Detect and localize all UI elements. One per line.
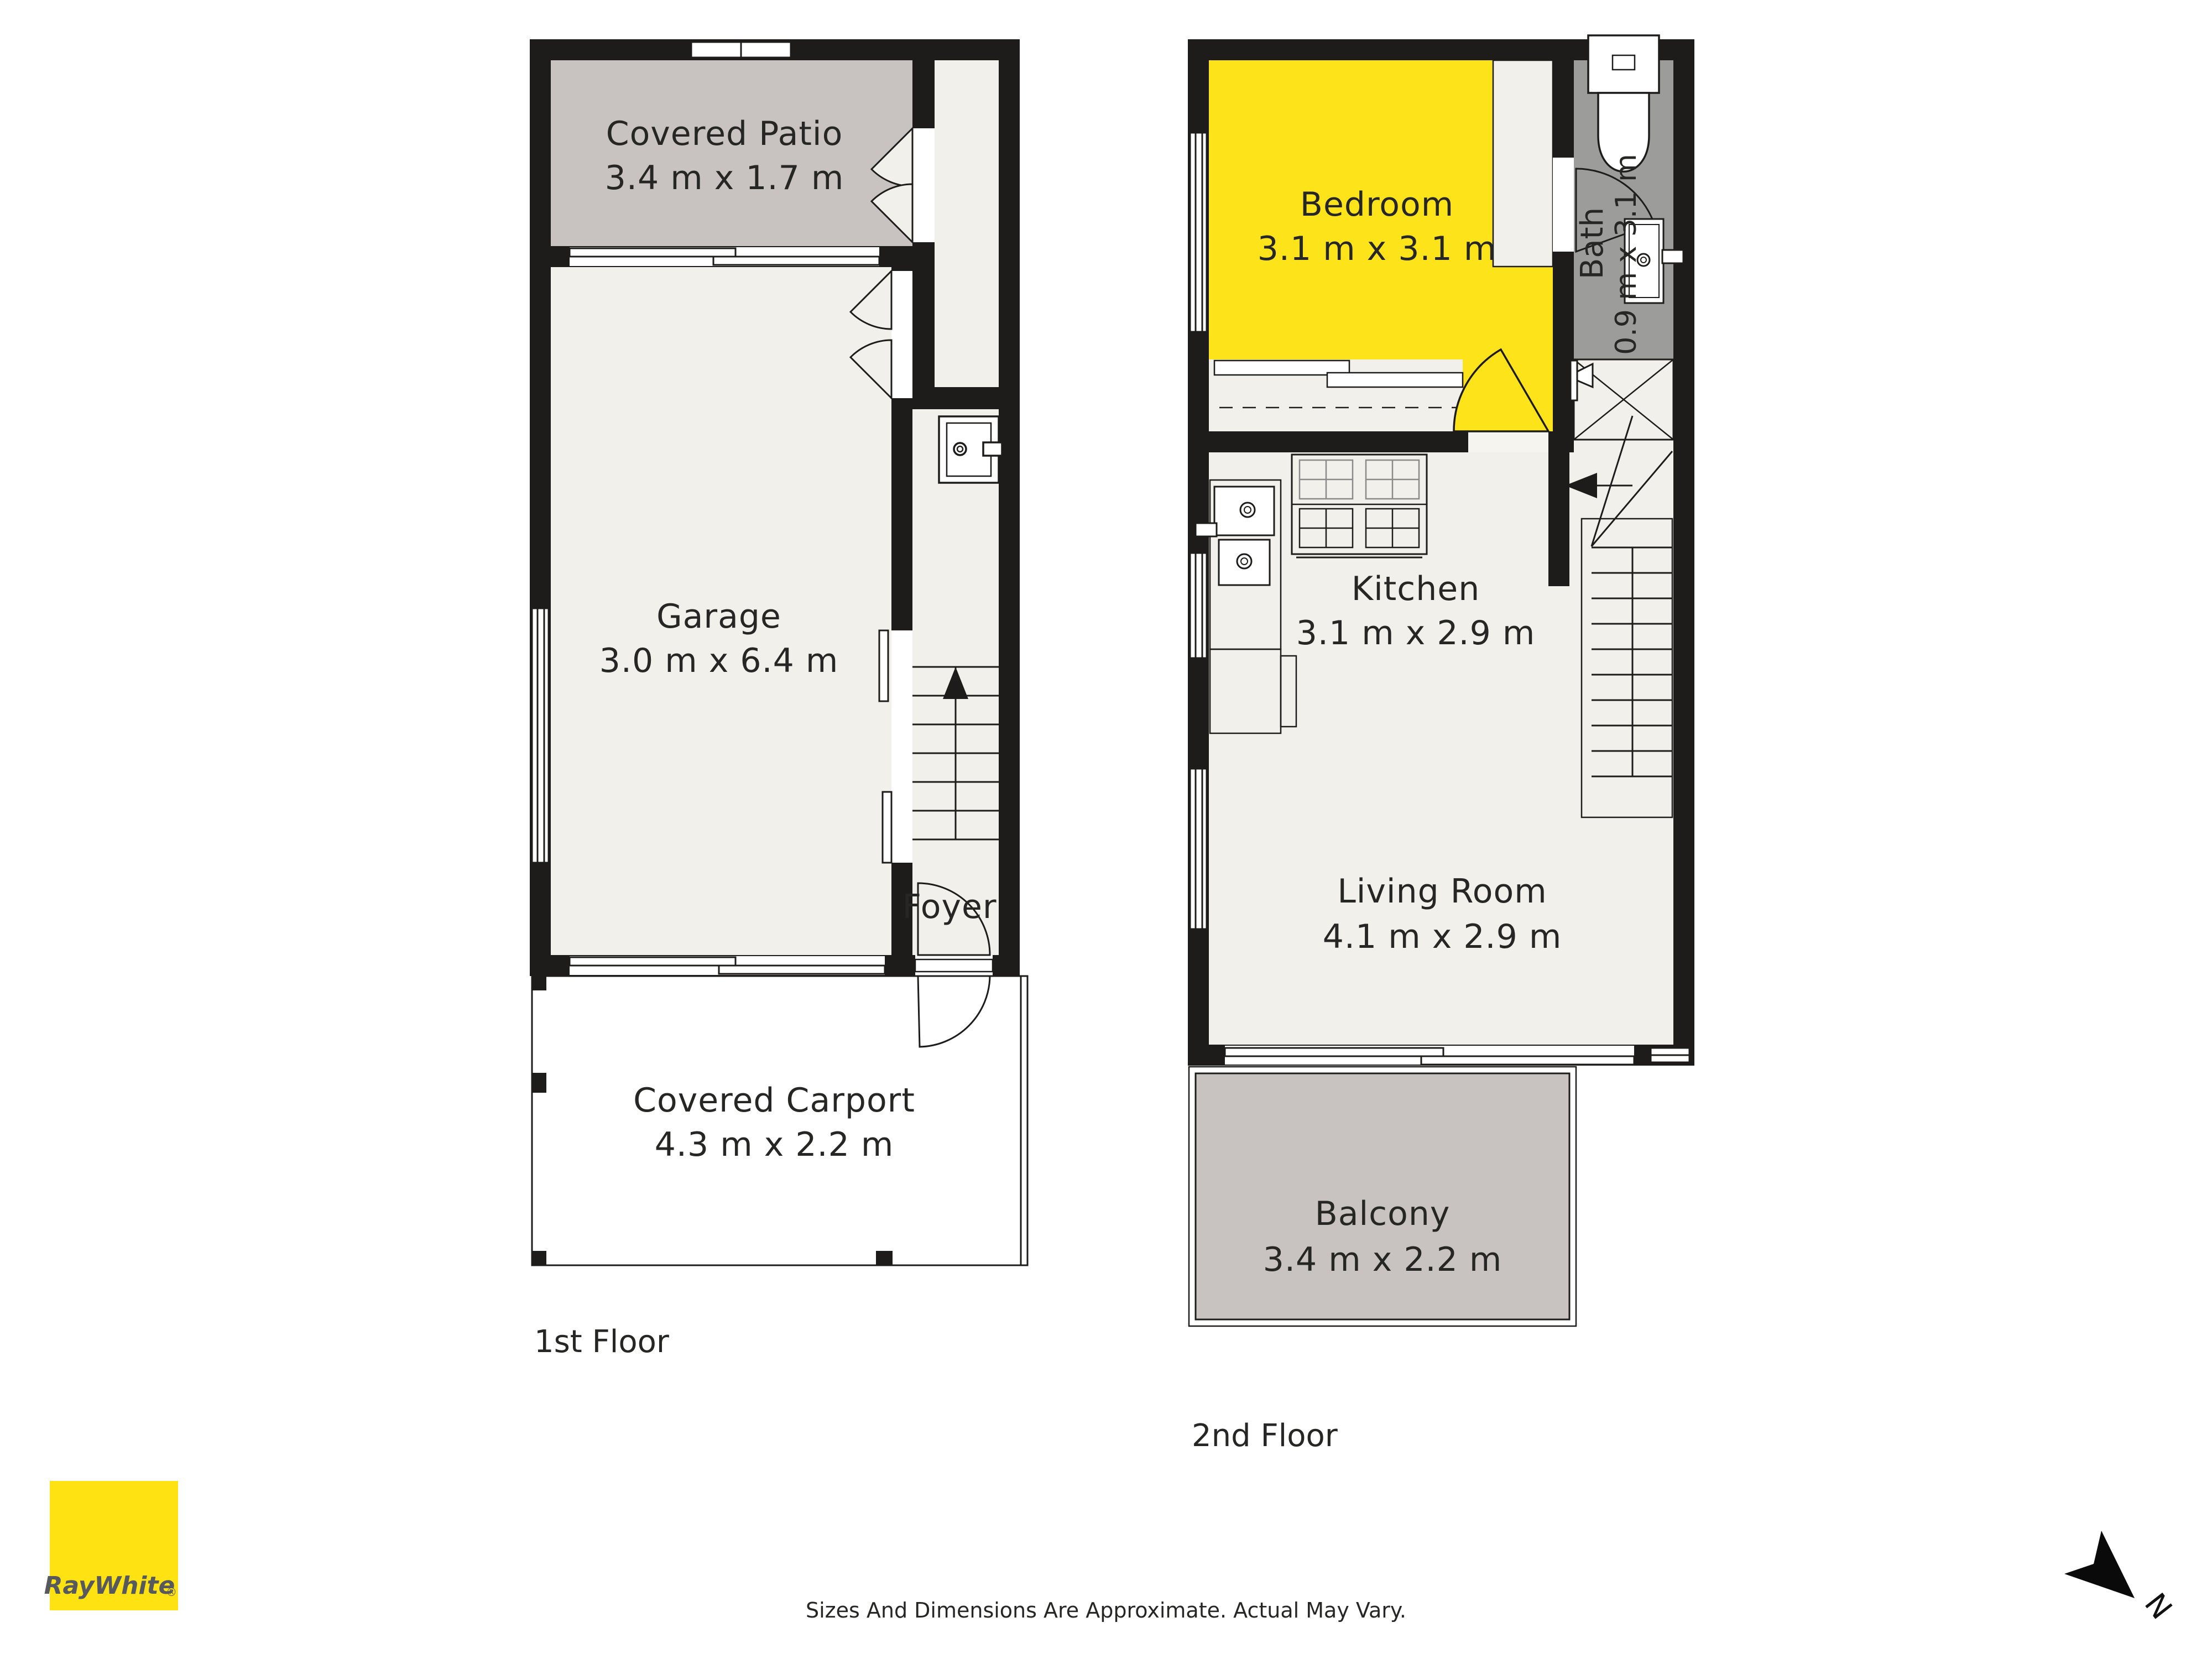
second-floor-plan: Bedroom 3.1 m x 3.1 m Bath 0.9 m x 3.1 m…: [1188, 35, 1694, 1454]
kitchen-label: Kitchen: [1352, 570, 1480, 608]
cooktop-icon: [1292, 455, 1427, 557]
garage-label: Garage: [656, 597, 781, 636]
covered-carport-label: Covered Carport: [633, 1081, 915, 1120]
raywhite-logo: RayWhite ®: [44, 1481, 178, 1610]
first-floor-title: 1st Floor: [534, 1324, 670, 1360]
balcony-dims: 3.4 m x 2.2 m: [1263, 1240, 1503, 1279]
covered-carport-dims: 4.3 m x 2.2 m: [655, 1125, 894, 1164]
covered-patio-area: [551, 60, 912, 246]
covered-patio-dims: 3.4 m x 1.7 m: [605, 159, 844, 197]
foyer-label: Foyer: [902, 888, 997, 926]
kitchen-dims: 3.1 m x 2.9 m: [1296, 614, 1536, 653]
floorplan-canvas: Covered Patio 3.4 m x 1.7 m Garage 3.0 m…: [0, 0, 2212, 1659]
north-label: N: [2138, 1587, 2179, 1626]
second-floor-title: 2nd Floor: [1192, 1418, 1338, 1454]
disclaimer-text: Sizes And Dimensions Are Approximate. Ac…: [806, 1598, 1406, 1623]
shower-icon: [1571, 359, 1673, 440]
bath-dims: 0.9 m x 3.1 m: [1610, 154, 1643, 355]
north-arrow-icon: N: [2064, 1531, 2179, 1626]
living-room-label: Living Room: [1337, 872, 1547, 911]
bedroom-closet: [1493, 60, 1553, 267]
balcony-label: Balcony: [1315, 1194, 1451, 1233]
garage-dims: 3.0 m x 6.4 m: [599, 641, 839, 680]
bath-label: Bath: [1574, 207, 1610, 279]
logo-wordmark: RayWhite: [44, 1572, 175, 1600]
bedroom-label: Bedroom: [1300, 185, 1454, 224]
first-floor-plan: Covered Patio 3.4 m x 1.7 m Garage 3.0 m…: [530, 39, 1027, 1360]
bedroom-dims: 3.1 m x 3.1 m: [1258, 229, 1497, 268]
covered-patio-label: Covered Patio: [606, 114, 843, 153]
laundry-tub-icon: [939, 416, 1002, 483]
living-room-dims: 4.1 m x 2.9 m: [1323, 917, 1562, 956]
registered-mark: ®: [166, 1585, 177, 1599]
